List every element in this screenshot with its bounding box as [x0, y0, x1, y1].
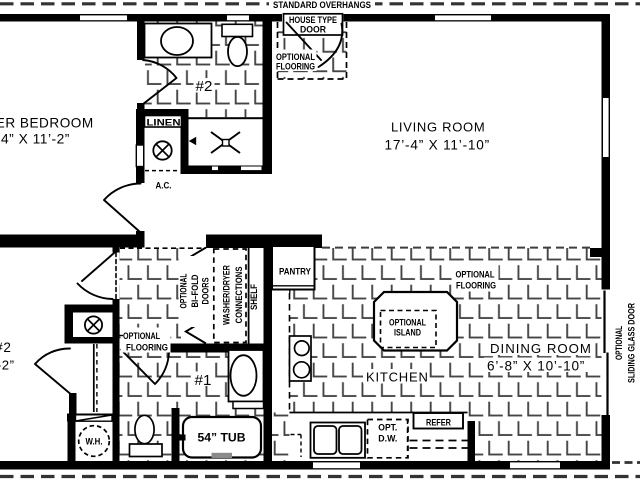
svg-text:WASHER/DRYER: WASHER/DRYER	[222, 265, 232, 325]
svg-text:OPTIONAL: OPTIONAL	[123, 330, 160, 341]
svg-text:OPTIONAL: OPTIONAL	[614, 326, 624, 360]
svg-text:REFER: REFER	[426, 417, 451, 428]
svg-text:DINING ROOM: DINING ROOM	[490, 341, 592, 356]
svg-text:LINEN: LINEN	[147, 117, 181, 128]
svg-text:6’-8” X 10’-10”: 6’-8” X 10’-10”	[487, 359, 585, 374]
svg-text:#2: #2	[196, 78, 213, 95]
svg-text:KITCHEN: KITCHEN	[366, 370, 429, 385]
svg-text:SLIDING GLASS DOOR: SLIDING GLASS DOOR	[627, 303, 637, 383]
svg-text:PANTRY: PANTRY	[279, 266, 312, 277]
svg-text:BEDROOM #2: BEDROOM #2	[0, 340, 12, 355]
svg-text:D.W.: D.W.	[378, 434, 397, 444]
svg-text:54” TUB: 54” TUB	[198, 432, 246, 445]
svg-text:DOOR: DOOR	[300, 23, 326, 34]
svg-text:17’-4” X 11’-10”: 17’-4” X 11’-10”	[385, 138, 490, 153]
svg-text:FLOORING: FLOORING	[456, 280, 496, 291]
svg-text:8’-0” X 8’-2”: 8’-0” X 8’-2”	[0, 358, 15, 373]
svg-text:FLOORING: FLOORING	[126, 342, 168, 353]
svg-text:BI–FOLD: BI–FOLD	[190, 274, 200, 307]
svg-text:STANDARD OVERHANGS: STANDARD OVERHANGS	[273, 0, 371, 10]
svg-text:W.H.: W.H.	[86, 436, 103, 446]
svg-text:OPTIONAL: OPTIONAL	[456, 268, 495, 279]
svg-text:MASTER BEDROOM: MASTER BEDROOM	[0, 116, 94, 131]
svg-text:FLOORING: FLOORING	[276, 60, 315, 71]
svg-text:CONNECTIONS: CONNECTIONS	[234, 267, 244, 324]
svg-text:OPT.: OPT.	[378, 423, 397, 433]
svg-text:13’-4” X 11’-2”: 13’-4” X 11’-2”	[0, 132, 70, 147]
svg-text:A.C.: A.C.	[156, 180, 172, 191]
svg-text:ISLAND: ISLAND	[394, 327, 421, 338]
svg-text:SHELF: SHELF	[249, 284, 259, 310]
svg-text:LIVING ROOM: LIVING ROOM	[391, 120, 485, 135]
svg-text:DOORS: DOORS	[201, 278, 211, 305]
svg-text:OPTIONAL: OPTIONAL	[179, 273, 189, 308]
svg-text:#1: #1	[195, 372, 212, 389]
